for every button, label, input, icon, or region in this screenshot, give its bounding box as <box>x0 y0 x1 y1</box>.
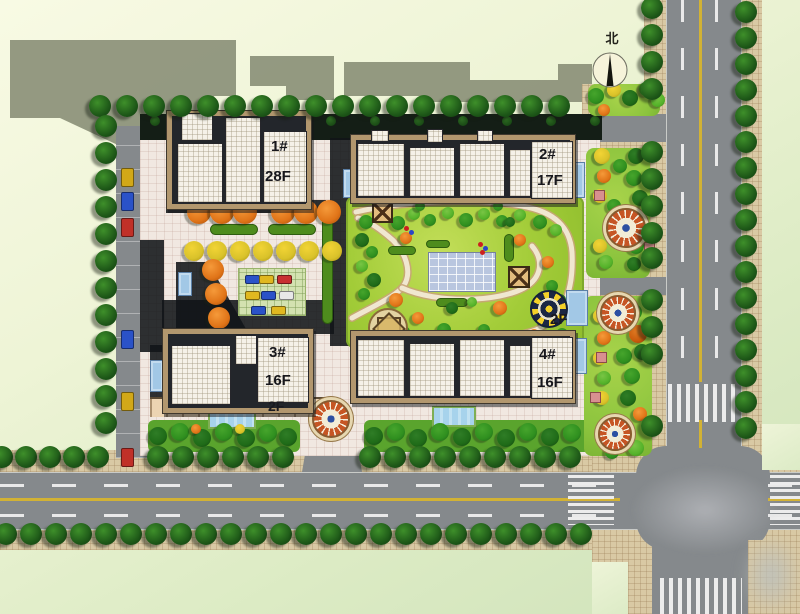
street-tree-icon <box>735 209 757 231</box>
strip-tree-icon <box>387 423 405 441</box>
street-tree-icon <box>641 289 663 311</box>
street-tree-icon <box>735 157 757 179</box>
street-tree-icon <box>63 446 85 468</box>
street-tree-icon <box>15 446 37 468</box>
strip-tree-icon <box>171 423 189 441</box>
street-tree-icon <box>197 446 219 468</box>
street-tree-icon <box>434 446 456 468</box>
street-tree-icon <box>521 95 543 117</box>
street-tree-icon <box>735 53 757 75</box>
strip-tree-icon <box>519 423 537 441</box>
strip-tree-icon <box>409 429 427 447</box>
street-tree-icon <box>87 446 109 468</box>
street-tree-icon <box>222 446 244 468</box>
street-tree-icon <box>172 446 194 468</box>
street-tree-icon <box>278 95 300 117</box>
street-tree-icon <box>170 95 192 117</box>
strip-tree-icon <box>541 428 559 446</box>
street-tree-icon <box>559 446 581 468</box>
street-tree-icon <box>170 523 192 545</box>
street-tree-icon <box>272 446 294 468</box>
street-tree-icon <box>245 523 267 545</box>
street-tree-icon <box>386 95 408 117</box>
street-tree-icon <box>305 95 327 117</box>
street-tree-icon <box>735 79 757 101</box>
street-tree-icon <box>548 95 570 117</box>
street-tree-icon <box>295 523 317 545</box>
street-tree-icon <box>320 523 342 545</box>
street-tree-icon <box>143 95 165 117</box>
trees-layer <box>0 0 800 614</box>
street-tree-icon <box>484 446 506 468</box>
street-tree-icon <box>467 95 489 117</box>
street-tree-icon <box>440 95 462 117</box>
north-arrow-icon <box>584 28 640 92</box>
street-tree-icon <box>735 339 757 361</box>
street-tree-icon <box>545 523 567 545</box>
street-tree-icon <box>95 277 117 299</box>
street-tree-icon <box>95 304 117 326</box>
street-tree-icon <box>495 523 517 545</box>
street-tree-icon <box>220 523 242 545</box>
street-tree-icon <box>735 365 757 387</box>
street-tree-icon <box>735 287 757 309</box>
strip-tree-icon <box>259 424 277 442</box>
street-tree-icon <box>247 446 269 468</box>
street-tree-icon <box>445 523 467 545</box>
strip-tree-icon <box>431 423 449 441</box>
street-tree-icon <box>735 27 757 49</box>
street-tree-icon <box>359 446 381 468</box>
street-tree-icon <box>494 95 516 117</box>
street-tree-icon <box>0 523 17 545</box>
street-tree-icon <box>95 250 117 272</box>
street-tree-icon <box>195 523 217 545</box>
street-tree-icon <box>735 417 757 439</box>
street-tree-icon <box>0 446 13 468</box>
street-tree-icon <box>641 141 663 163</box>
street-tree-icon <box>735 391 757 413</box>
strip-tree-icon <box>453 428 471 446</box>
street-tree-icon <box>251 95 273 117</box>
strip-tree-icon <box>365 427 383 445</box>
street-tree-icon <box>641 415 663 437</box>
street-tree-icon <box>735 261 757 283</box>
strip-tree-icon <box>497 429 515 447</box>
street-tree-icon <box>735 313 757 335</box>
strip-tree-icon <box>279 428 297 446</box>
street-tree-icon <box>270 523 292 545</box>
street-tree-icon <box>641 0 663 19</box>
street-tree-icon <box>39 446 61 468</box>
street-tree-icon <box>89 95 111 117</box>
street-tree-icon <box>641 316 663 338</box>
strip-tree-icon <box>149 427 167 445</box>
street-tree-icon <box>370 523 392 545</box>
street-tree-icon <box>384 446 406 468</box>
street-tree-icon <box>459 446 481 468</box>
street-tree-icon <box>641 24 663 46</box>
street-tree-icon <box>95 523 117 545</box>
street-tree-icon <box>95 385 117 407</box>
street-tree-icon <box>395 523 417 545</box>
street-tree-icon <box>735 235 757 257</box>
street-tree-icon <box>224 95 246 117</box>
strip-tree-icon <box>215 423 233 441</box>
street-tree-icon <box>520 523 542 545</box>
street-tree-icon <box>332 95 354 117</box>
strip-tree-icon <box>191 424 201 434</box>
street-tree-icon <box>70 523 92 545</box>
strip-tree-icon <box>475 423 493 441</box>
street-tree-icon <box>145 523 167 545</box>
street-tree-icon <box>570 523 592 545</box>
street-tree-icon <box>641 195 663 217</box>
street-tree-icon <box>359 95 381 117</box>
street-tree-icon <box>470 523 492 545</box>
street-tree-icon <box>95 331 117 353</box>
street-tree-icon <box>147 446 169 468</box>
street-tree-icon <box>735 105 757 127</box>
street-tree-icon <box>735 183 757 205</box>
street-tree-icon <box>95 142 117 164</box>
street-tree-icon <box>534 446 556 468</box>
street-tree-icon <box>120 523 142 545</box>
street-tree-icon <box>641 168 663 190</box>
strip-tree-icon <box>563 424 581 442</box>
street-tree-icon <box>95 115 117 137</box>
street-tree-icon <box>641 247 663 269</box>
street-tree-icon <box>95 223 117 245</box>
street-tree-icon <box>509 446 531 468</box>
street-tree-icon <box>641 343 663 365</box>
street-tree-icon <box>95 358 117 380</box>
street-tree-icon <box>413 95 435 117</box>
street-tree-icon <box>95 412 117 434</box>
street-tree-icon <box>197 95 219 117</box>
street-tree-icon <box>20 523 42 545</box>
street-tree-icon <box>641 51 663 73</box>
street-tree-icon <box>641 222 663 244</box>
street-tree-icon <box>345 523 367 545</box>
strip-tree-icon <box>235 424 245 434</box>
street-tree-icon <box>45 523 67 545</box>
street-tree-icon <box>735 131 757 153</box>
north-arrow: 北 <box>584 28 640 92</box>
street-tree-icon <box>409 446 431 468</box>
street-tree-icon <box>735 1 757 23</box>
street-tree-icon <box>95 169 117 191</box>
street-tree-icon <box>116 95 138 117</box>
street-tree-icon <box>95 196 117 218</box>
site-plan: 1# 28F 2# 17F 3# 16F 4# 16F 2F 2F <box>0 0 800 614</box>
street-tree-icon <box>420 523 442 545</box>
street-tree-icon <box>641 78 663 100</box>
